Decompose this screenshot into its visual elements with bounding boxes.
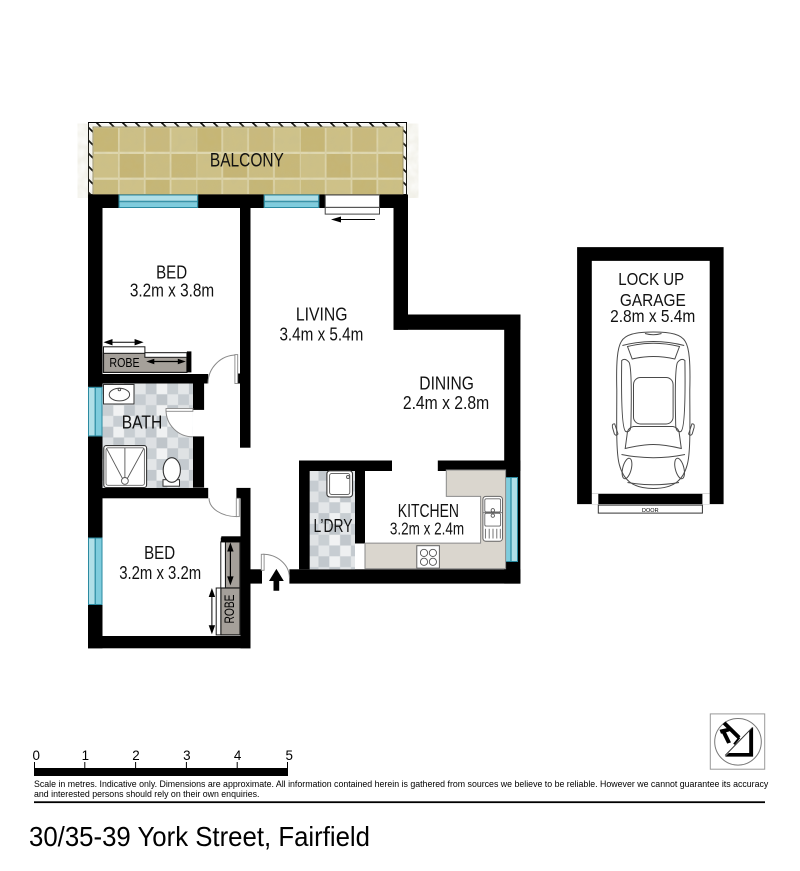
svg-text:0: 0	[32, 748, 39, 763]
svg-text:ROBE: ROBE	[222, 595, 237, 624]
svg-text:3.2m x 3.8m: 3.2m x 3.8m	[130, 280, 214, 301]
svg-text:3.2m x 2.4m: 3.2m x 2.4m	[390, 518, 464, 538]
svg-text:L’DRY: L’DRY	[313, 516, 352, 536]
svg-text:3: 3	[183, 748, 190, 763]
svg-text:3.2m x 3.2m: 3.2m x 3.2m	[119, 562, 201, 583]
svg-text:DOOR: DOOR	[642, 508, 659, 514]
svg-text:ROBE: ROBE	[109, 356, 139, 370]
svg-text:BATH: BATH	[122, 412, 163, 433]
svg-text:5: 5	[285, 748, 292, 763]
svg-text:Scale in metres. Indicative on: Scale in metres. Indicative only. Dimens…	[34, 779, 769, 789]
svg-text:2.8m x 5.4m: 2.8m x 5.4m	[610, 306, 695, 326]
svg-text:2.4m x 2.8m: 2.4m x 2.8m	[403, 392, 489, 413]
svg-text:2: 2	[132, 748, 139, 763]
svg-text:LIVING: LIVING	[296, 303, 348, 324]
svg-text:BALCONY: BALCONY	[210, 151, 284, 172]
svg-text:DINING: DINING	[419, 372, 474, 393]
svg-text:4: 4	[234, 748, 242, 763]
svg-text:3.4m x 5.4m: 3.4m x 5.4m	[279, 323, 363, 344]
svg-text:1: 1	[82, 748, 89, 763]
svg-text:LOCK UP: LOCK UP	[618, 269, 684, 289]
svg-text:30/35-39 York Street, Fairfiel: 30/35-39 York Street, Fairfield	[29, 821, 370, 852]
svg-text:BED: BED	[144, 542, 175, 563]
svg-text:and interested persons should: and interested persons should rely on th…	[34, 789, 259, 799]
